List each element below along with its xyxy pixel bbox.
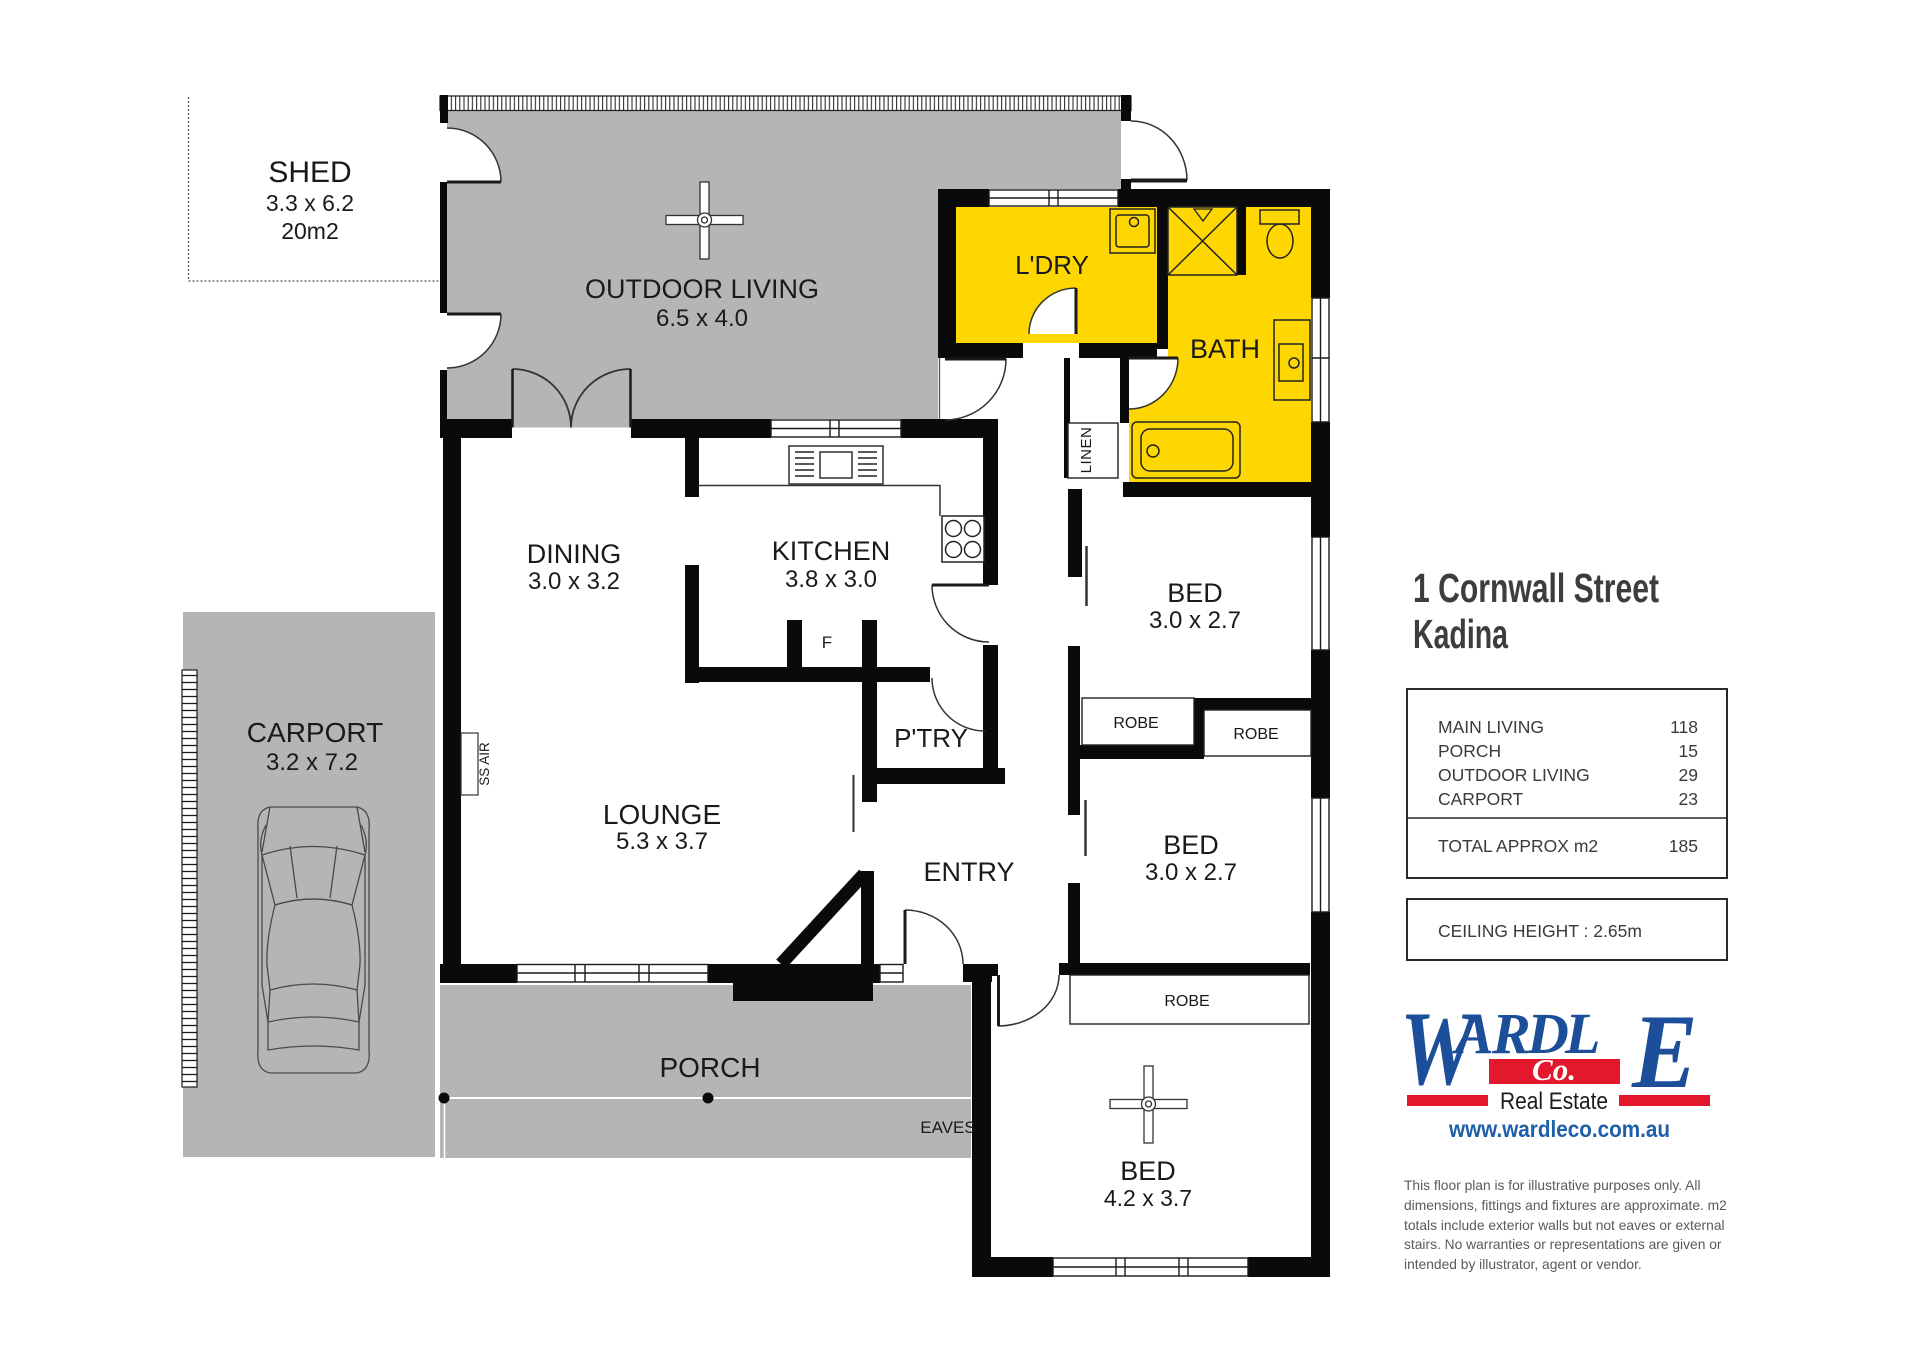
svg-text:ROBE: ROBE [1164, 993, 1209, 1010]
svg-text:1 Cornwall Street: 1 Cornwall Street [1413, 565, 1659, 611]
svg-text:3.0 x 2.7: 3.0 x 2.7 [1149, 607, 1241, 634]
svg-text:F: F [822, 633, 832, 652]
svg-text:SHED: SHED [268, 156, 351, 189]
svg-text:PORCH: PORCH [659, 1052, 760, 1083]
svg-text:4.2 x 3.7: 4.2 x 3.7 [1104, 1185, 1192, 1211]
svg-text:3.8 x 3.0: 3.8 x 3.0 [785, 566, 877, 593]
svg-text:L'DRY: L'DRY [1015, 250, 1089, 280]
svg-text:LOUNGE: LOUNGE [603, 799, 721, 830]
svg-text:15: 15 [1679, 741, 1698, 761]
svg-text:DINING: DINING [527, 539, 622, 569]
svg-text:Real Estate: Real Estate [1500, 1088, 1608, 1115]
svg-text:CEILING HEIGHT : 2.65m: CEILING HEIGHT : 2.65m [1438, 921, 1642, 941]
svg-text:BED: BED [1120, 1156, 1176, 1186]
svg-text:This floor plan is for illustr: This floor plan is for illustrative purp… [1404, 1178, 1701, 1193]
svg-text:SS AIR: SS AIR [477, 742, 492, 786]
svg-text:3.3 x 6.2: 3.3 x 6.2 [266, 190, 354, 216]
svg-text:KITCHEN: KITCHEN [772, 536, 891, 566]
svg-text:Kadina: Kadina [1413, 611, 1509, 657]
svg-text:R: R [1491, 1001, 1531, 1066]
svg-text:P'TRY: P'TRY [894, 723, 968, 753]
svg-text:E: E [1631, 994, 1698, 1111]
svg-text:dimensions, fittings and fixtu: dimensions, fittings and fixtures are ap… [1404, 1198, 1727, 1213]
svg-text:stairs. No warranties or repre: stairs. No warranties or representations… [1404, 1237, 1722, 1252]
svg-text:A: A [1452, 1001, 1494, 1066]
svg-text:CARPORT: CARPORT [1438, 789, 1524, 809]
svg-text:OUTDOOR LIVING: OUTDOOR LIVING [585, 274, 819, 304]
svg-text:BED: BED [1167, 578, 1223, 608]
svg-text:CARPORT: CARPORT [247, 717, 383, 748]
svg-text:20m2: 20m2 [281, 218, 339, 244]
svg-text:ENTRY: ENTRY [923, 857, 1014, 887]
svg-text:29: 29 [1679, 765, 1698, 785]
svg-text:PORCH: PORCH [1438, 741, 1501, 761]
svg-text:MAIN LIVING: MAIN LIVING [1438, 717, 1544, 737]
svg-text:ROBE: ROBE [1113, 715, 1158, 732]
svg-text:Co.: Co. [1532, 1052, 1576, 1087]
svg-text:BED: BED [1163, 830, 1219, 860]
svg-text:BATH: BATH [1190, 334, 1260, 364]
svg-text:5.3 x 3.7: 5.3 x 3.7 [616, 828, 708, 855]
svg-text:3.0 x 2.7: 3.0 x 2.7 [1145, 859, 1237, 886]
svg-text:23: 23 [1679, 789, 1698, 809]
svg-text:118: 118 [1670, 717, 1698, 737]
svg-text:EAVES: EAVES [920, 1118, 975, 1137]
svg-text:3.0 x 3.2: 3.0 x 3.2 [528, 568, 620, 595]
svg-text:3.2 x 7.2: 3.2 x 7.2 [266, 749, 358, 776]
svg-text:www.wardleco.com.au: www.wardleco.com.au [1448, 1116, 1670, 1142]
svg-text:totals include exterior walls: totals include exterior walls but not ea… [1404, 1218, 1725, 1233]
svg-text:intended by illustrator, agent: intended by illustrator, agent or vendor… [1404, 1257, 1642, 1272]
svg-text:ROBE: ROBE [1233, 726, 1278, 743]
svg-text:LINEN: LINEN [1078, 427, 1095, 474]
svg-text:6.5 x 4.0: 6.5 x 4.0 [656, 305, 748, 332]
svg-text:TOTAL APPROX m2: TOTAL APPROX m2 [1438, 836, 1598, 856]
svg-text:OUTDOOR LIVING: OUTDOOR LIVING [1438, 765, 1590, 785]
svg-text:185: 185 [1669, 836, 1698, 856]
